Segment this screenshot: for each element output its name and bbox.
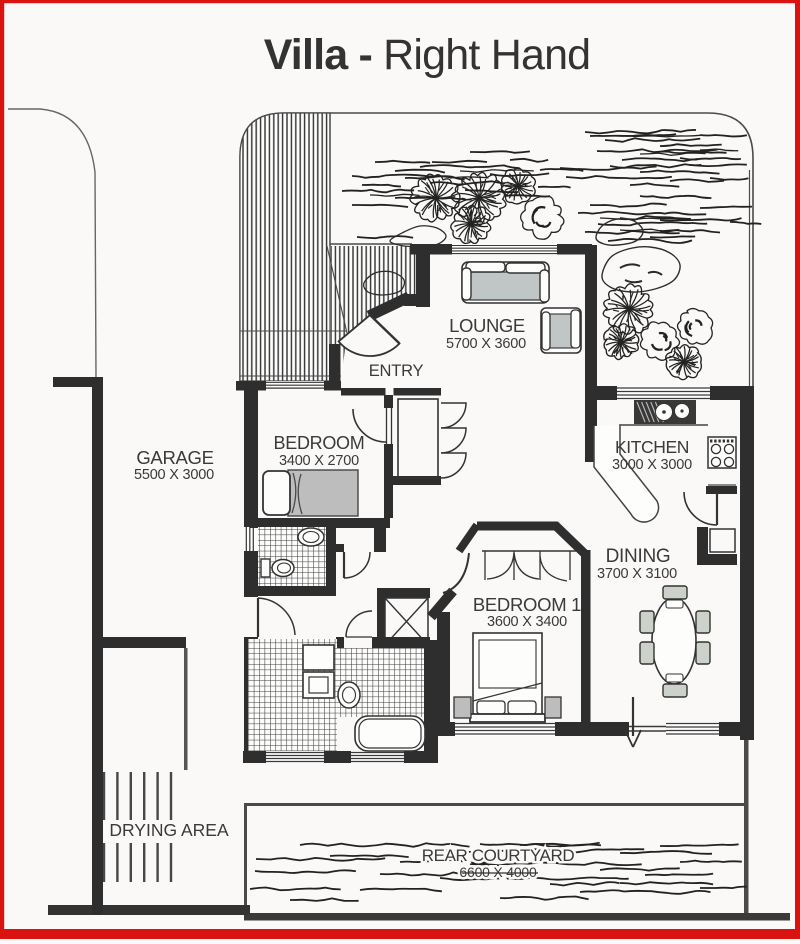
svg-text:REAR COURTYARD: REAR COURTYARD xyxy=(422,846,575,865)
svg-text:5700 X 3600: 5700 X 3600 xyxy=(446,336,526,352)
svg-text:DINING: DINING xyxy=(606,546,671,567)
svg-text:KITCHEN: KITCHEN xyxy=(615,437,689,457)
svg-text:ENTRY: ENTRY xyxy=(369,362,424,380)
svg-text:BEDROOM: BEDROOM xyxy=(274,433,365,453)
svg-text:5500 X 3000: 5500 X 3000 xyxy=(134,467,214,483)
svg-text:3700 X 3100: 3700 X 3100 xyxy=(597,566,677,582)
svg-text:LOUNGE: LOUNGE xyxy=(449,315,525,336)
svg-text:GARAGE: GARAGE xyxy=(136,447,213,468)
svg-text:3400 X 2700: 3400 X 2700 xyxy=(279,453,359,469)
svg-text:BEDROOM 1: BEDROOM 1 xyxy=(473,594,581,615)
svg-text:6600 X 4000: 6600 X 4000 xyxy=(459,864,537,880)
svg-text:Villa - Right Hand: Villa - Right Hand xyxy=(264,31,591,79)
svg-text:3600 X 3400: 3600 X 3400 xyxy=(487,614,567,630)
svg-text:3000 X 3000: 3000 X 3000 xyxy=(612,457,692,473)
svg-text:DRYING AREA: DRYING AREA xyxy=(109,820,229,840)
